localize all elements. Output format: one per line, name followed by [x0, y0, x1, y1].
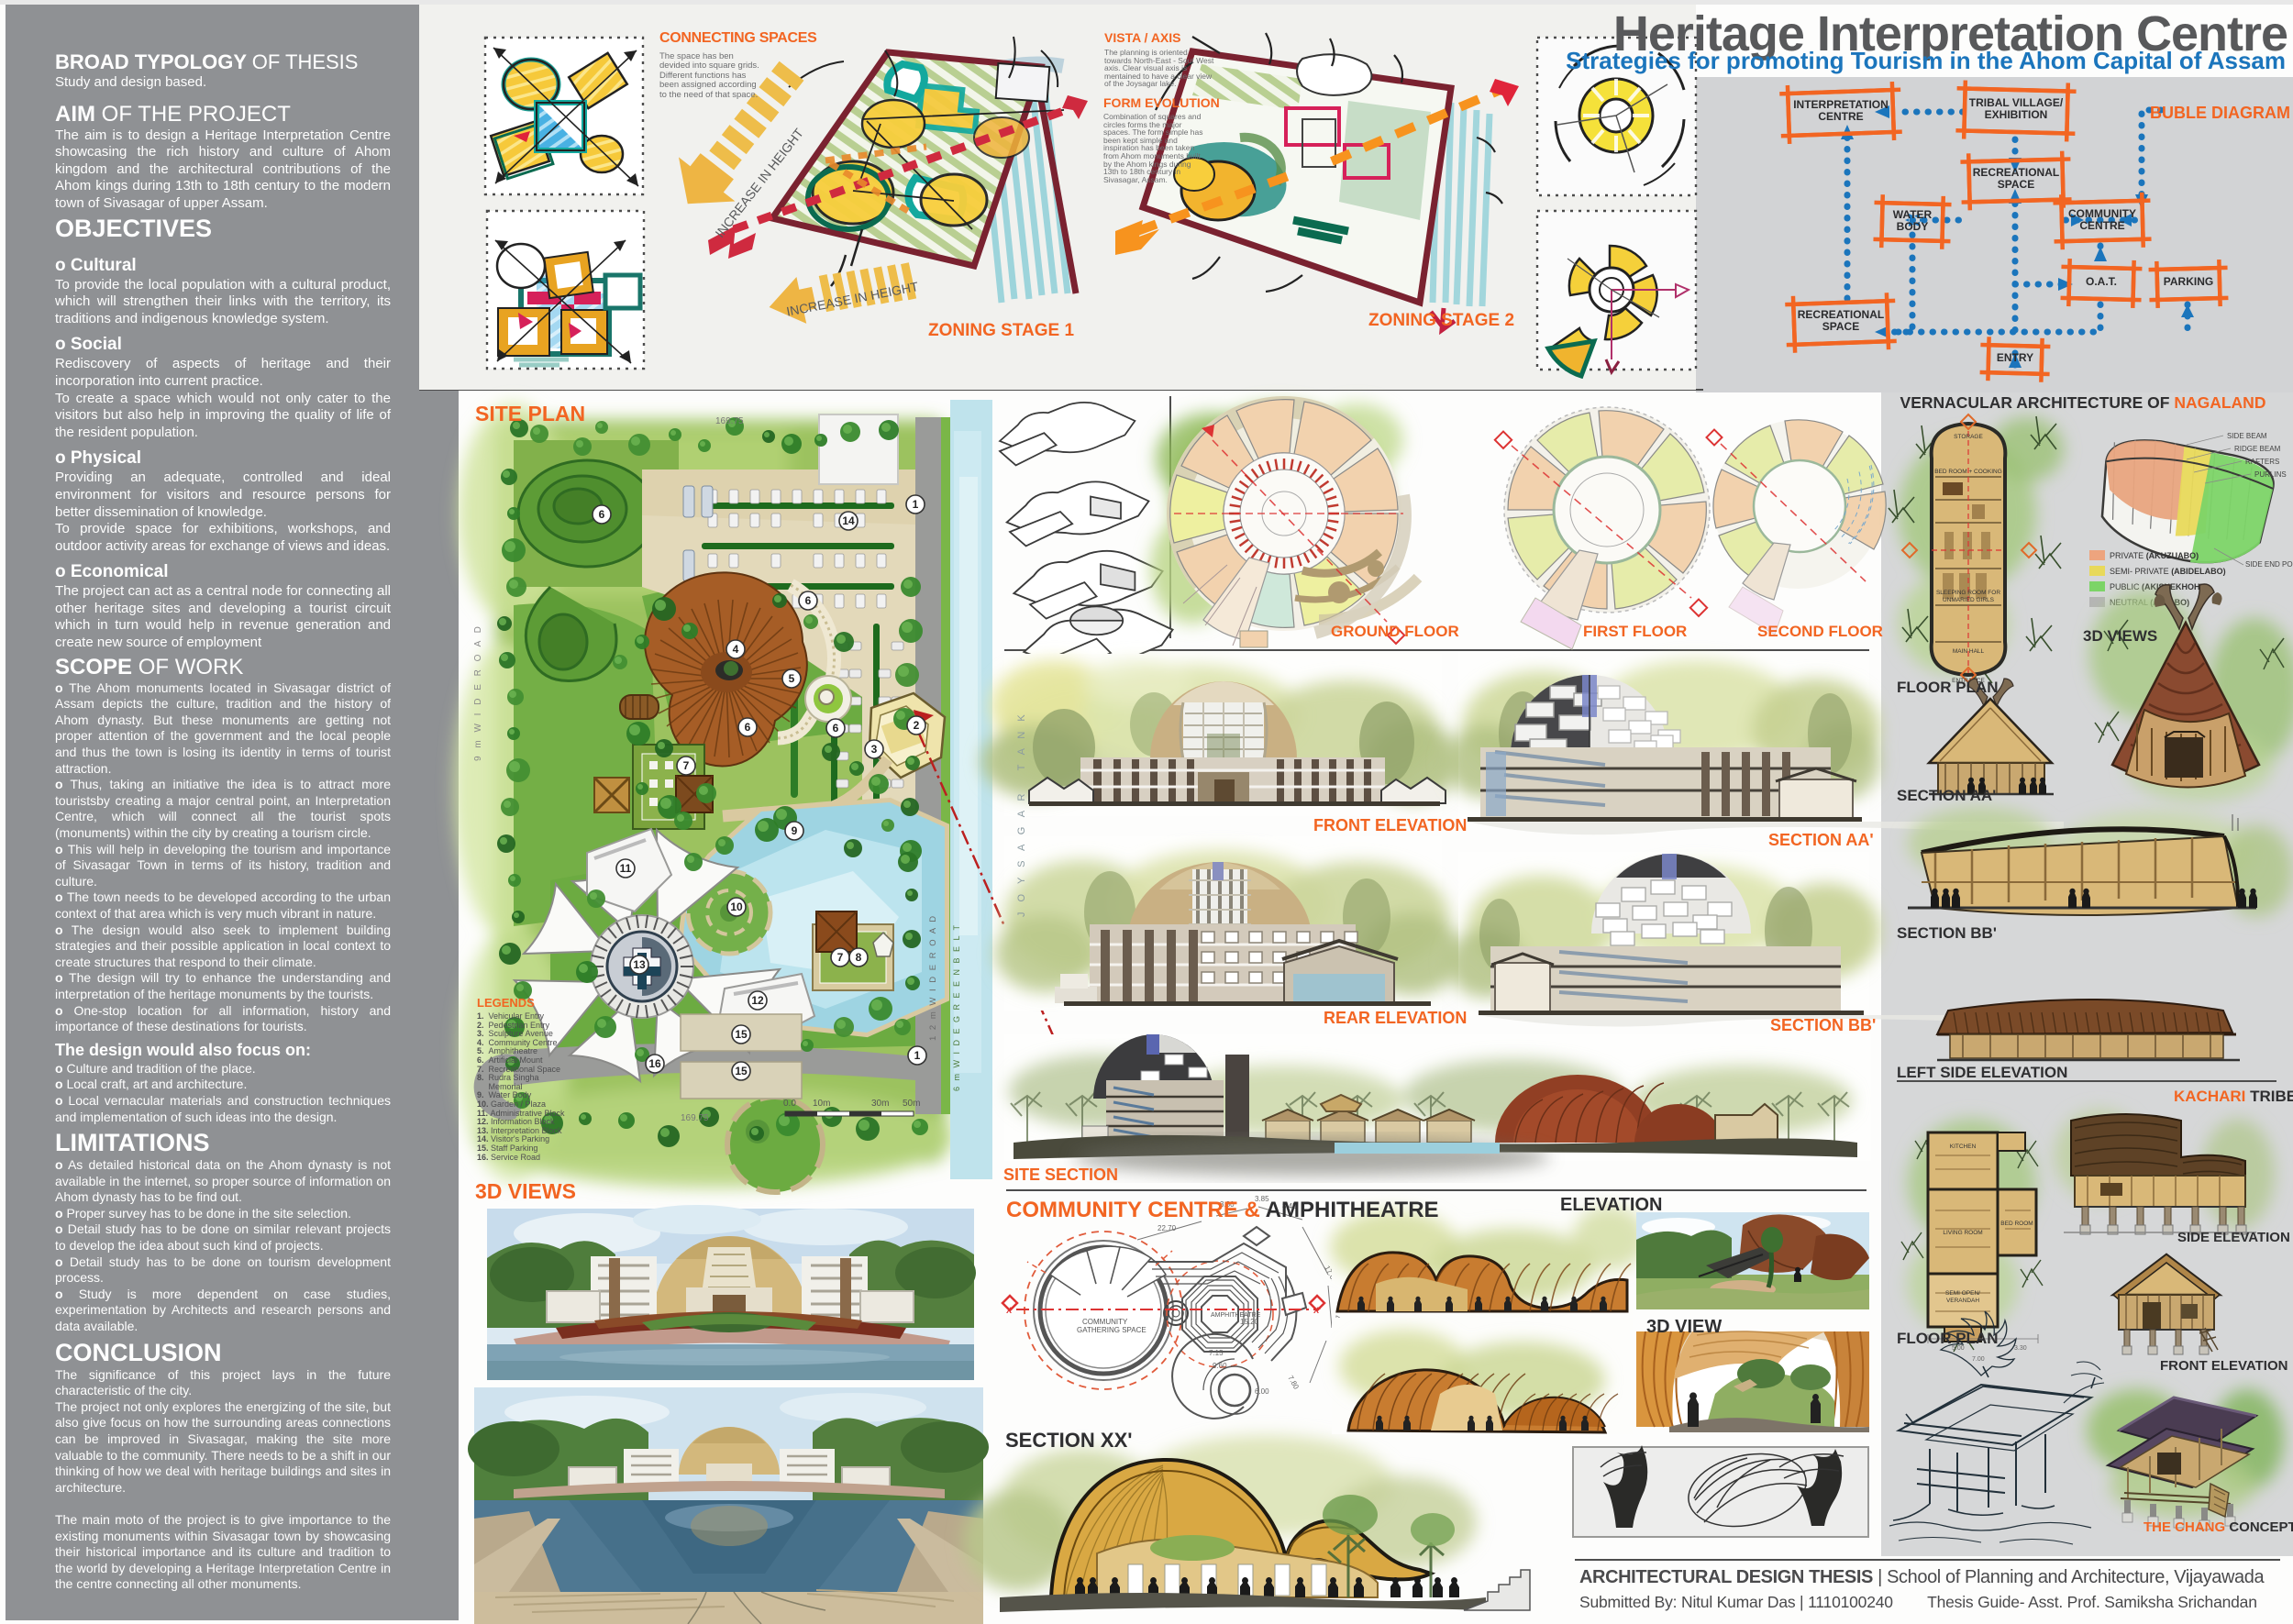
- svg-text:0.0: 0.0: [783, 1099, 796, 1109]
- svg-text:PUBLIC (AKISHEKHOH): PUBLIC (AKISHEKHOH): [2110, 582, 2203, 591]
- svg-text:SIDE BEAM: SIDE BEAM: [2227, 432, 2267, 440]
- svg-text:9.60: 9.60: [1213, 1362, 1227, 1370]
- svg-text:10m: 10m: [813, 1099, 830, 1109]
- svg-text:12: 12: [751, 994, 764, 1007]
- svg-text:16: 16: [648, 1057, 661, 1070]
- svg-text:50m: 50m: [903, 1099, 920, 1109]
- svg-text:15: 15: [735, 1028, 748, 1041]
- svg-text:6: 6: [745, 721, 751, 734]
- svg-text:10: 10: [730, 900, 743, 913]
- svg-text:1: 1: [914, 1049, 921, 1062]
- svg-text:7: 7: [837, 951, 844, 964]
- svg-text:14: 14: [842, 514, 855, 527]
- svg-text:PRIVATE (AKUZUABO): PRIVATE (AKUZUABO): [2110, 551, 2199, 560]
- svg-text:RIDGE BEAM: RIDGE BEAM: [2234, 445, 2281, 453]
- svg-text:SIDE END POST: SIDE END POST: [2245, 560, 2293, 569]
- svg-text:VERANDAH: VERANDAH: [1946, 1298, 1979, 1304]
- svg-text:X: X: [1006, 1306, 1012, 1315]
- svg-text:3: 3: [871, 743, 878, 756]
- svg-text:22.70: 22.70: [1158, 1224, 1177, 1232]
- svg-text:6: 6: [805, 594, 812, 607]
- svg-text:SLEEPING ROOM FOR: SLEEPING ROOM FOR: [1936, 590, 2000, 596]
- svg-text:15.20: 15.20: [1240, 1318, 1259, 1326]
- svg-text:2: 2: [914, 719, 920, 732]
- svg-text:15: 15: [735, 1065, 748, 1077]
- svg-text:7.80: 7.80: [1286, 1375, 1301, 1391]
- svg-text:9: 9: [792, 824, 798, 837]
- svg-text:6: 6: [599, 508, 605, 521]
- svg-text:RAFTERS: RAFTERS: [2245, 458, 2279, 466]
- svg-text:X': X': [1313, 1306, 1321, 1315]
- svg-text:4: 4: [733, 643, 739, 656]
- svg-text:1: 1: [913, 498, 919, 511]
- svg-text:COMMUNITY: COMMUNITY: [1082, 1318, 1128, 1326]
- svg-text:169.75: 169.75: [715, 416, 744, 426]
- svg-text:3.30: 3.30: [2014, 1345, 2027, 1352]
- svg-text:STORAGE: STORAGE: [1954, 434, 1983, 440]
- svg-text:SEMI OPEN/: SEMI OPEN/: [1945, 1290, 1980, 1297]
- svg-text:11: 11: [620, 862, 632, 875]
- svg-text:8: 8: [856, 951, 862, 964]
- svg-text:GATHERING SPACE: GATHERING SPACE: [1077, 1326, 1146, 1334]
- svg-text:169.75: 169.75: [681, 1113, 709, 1123]
- svg-text:7.15: 7.15: [1209, 1349, 1224, 1357]
- svg-text:5: 5: [789, 672, 795, 685]
- svg-text:BED ROOM + COOKING: BED ROOM + COOKING: [1934, 469, 2002, 475]
- svg-text:6.00: 6.00: [1255, 1387, 1269, 1396]
- svg-text:7.00: 7.00: [1972, 1356, 1985, 1363]
- svg-text:LIVING ROOM: LIVING ROOM: [1943, 1230, 1982, 1236]
- svg-text:13: 13: [633, 958, 646, 971]
- svg-text:BED ROOM: BED ROOM: [2000, 1221, 2033, 1227]
- svg-text:6: 6: [833, 722, 839, 735]
- svg-text:AMPHITHEATRE: AMPHITHEATRE: [1211, 1312, 1261, 1319]
- svg-text:UNMARIED GIRLS: UNMARIED GIRLS: [1943, 597, 1995, 603]
- svg-text:KITCHEN: KITCHEN: [1950, 1143, 1977, 1150]
- svg-text:7: 7: [683, 759, 690, 772]
- svg-text:PURLINS: PURLINS: [2254, 470, 2287, 479]
- svg-text:30m: 30m: [871, 1099, 889, 1109]
- svg-text:MAIN HALL: MAIN HALL: [1953, 648, 1985, 655]
- svg-text:SEMI- PRIVATE (ABIDELABO): SEMI- PRIVATE (ABIDELABO): [2110, 567, 2226, 576]
